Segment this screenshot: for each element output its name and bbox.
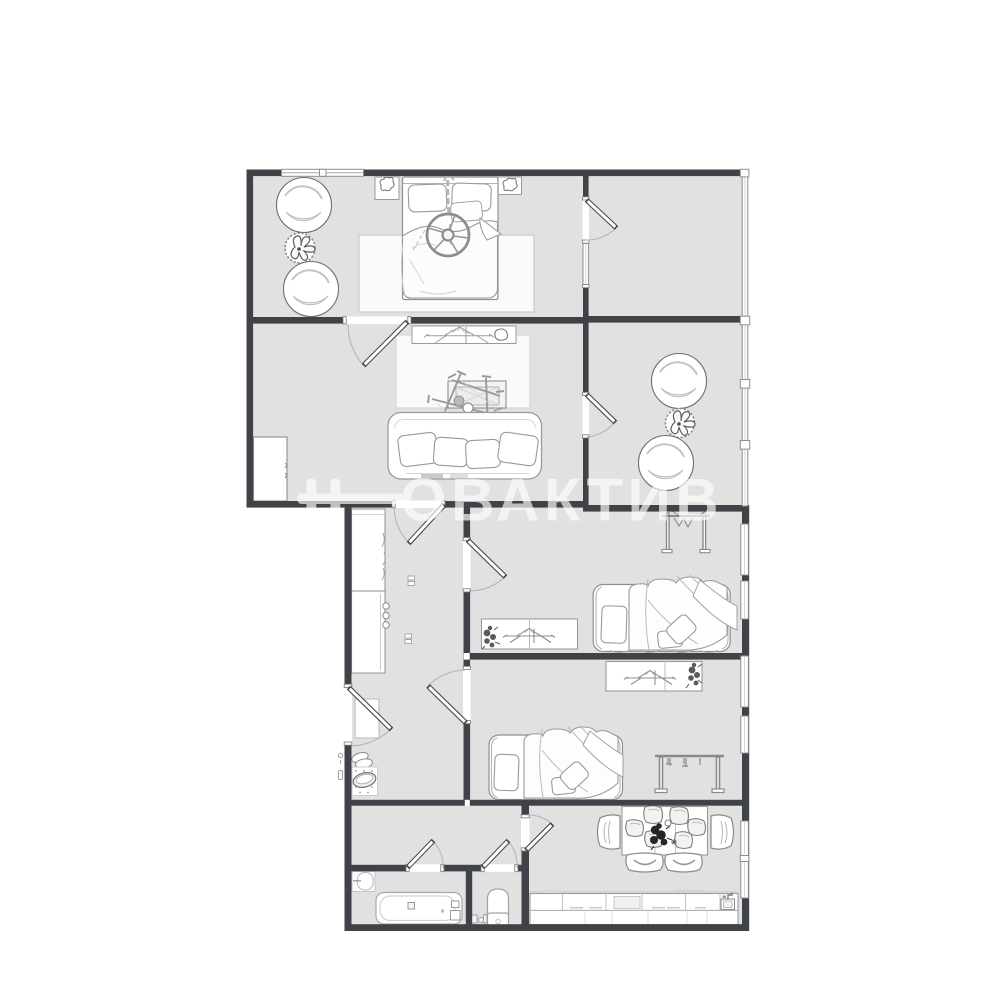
svg-text:ОВАКТИВ: ОВАКТИВ: [400, 467, 723, 534]
